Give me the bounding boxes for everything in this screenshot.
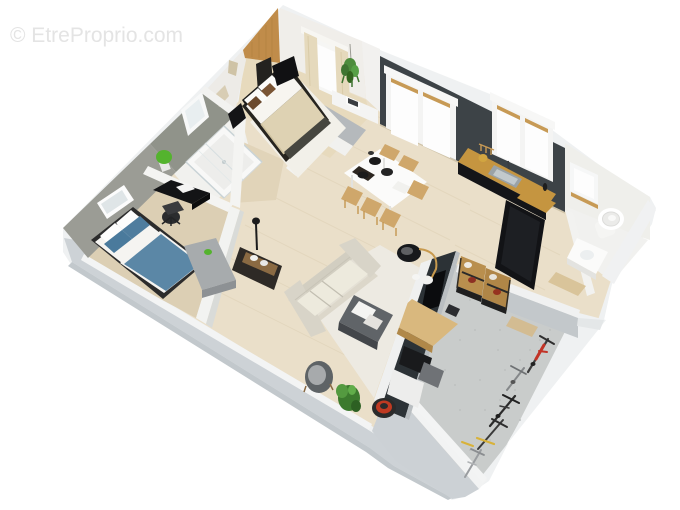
svg-text:© EtreProprio.com: © EtreProprio.com [10, 24, 183, 47]
